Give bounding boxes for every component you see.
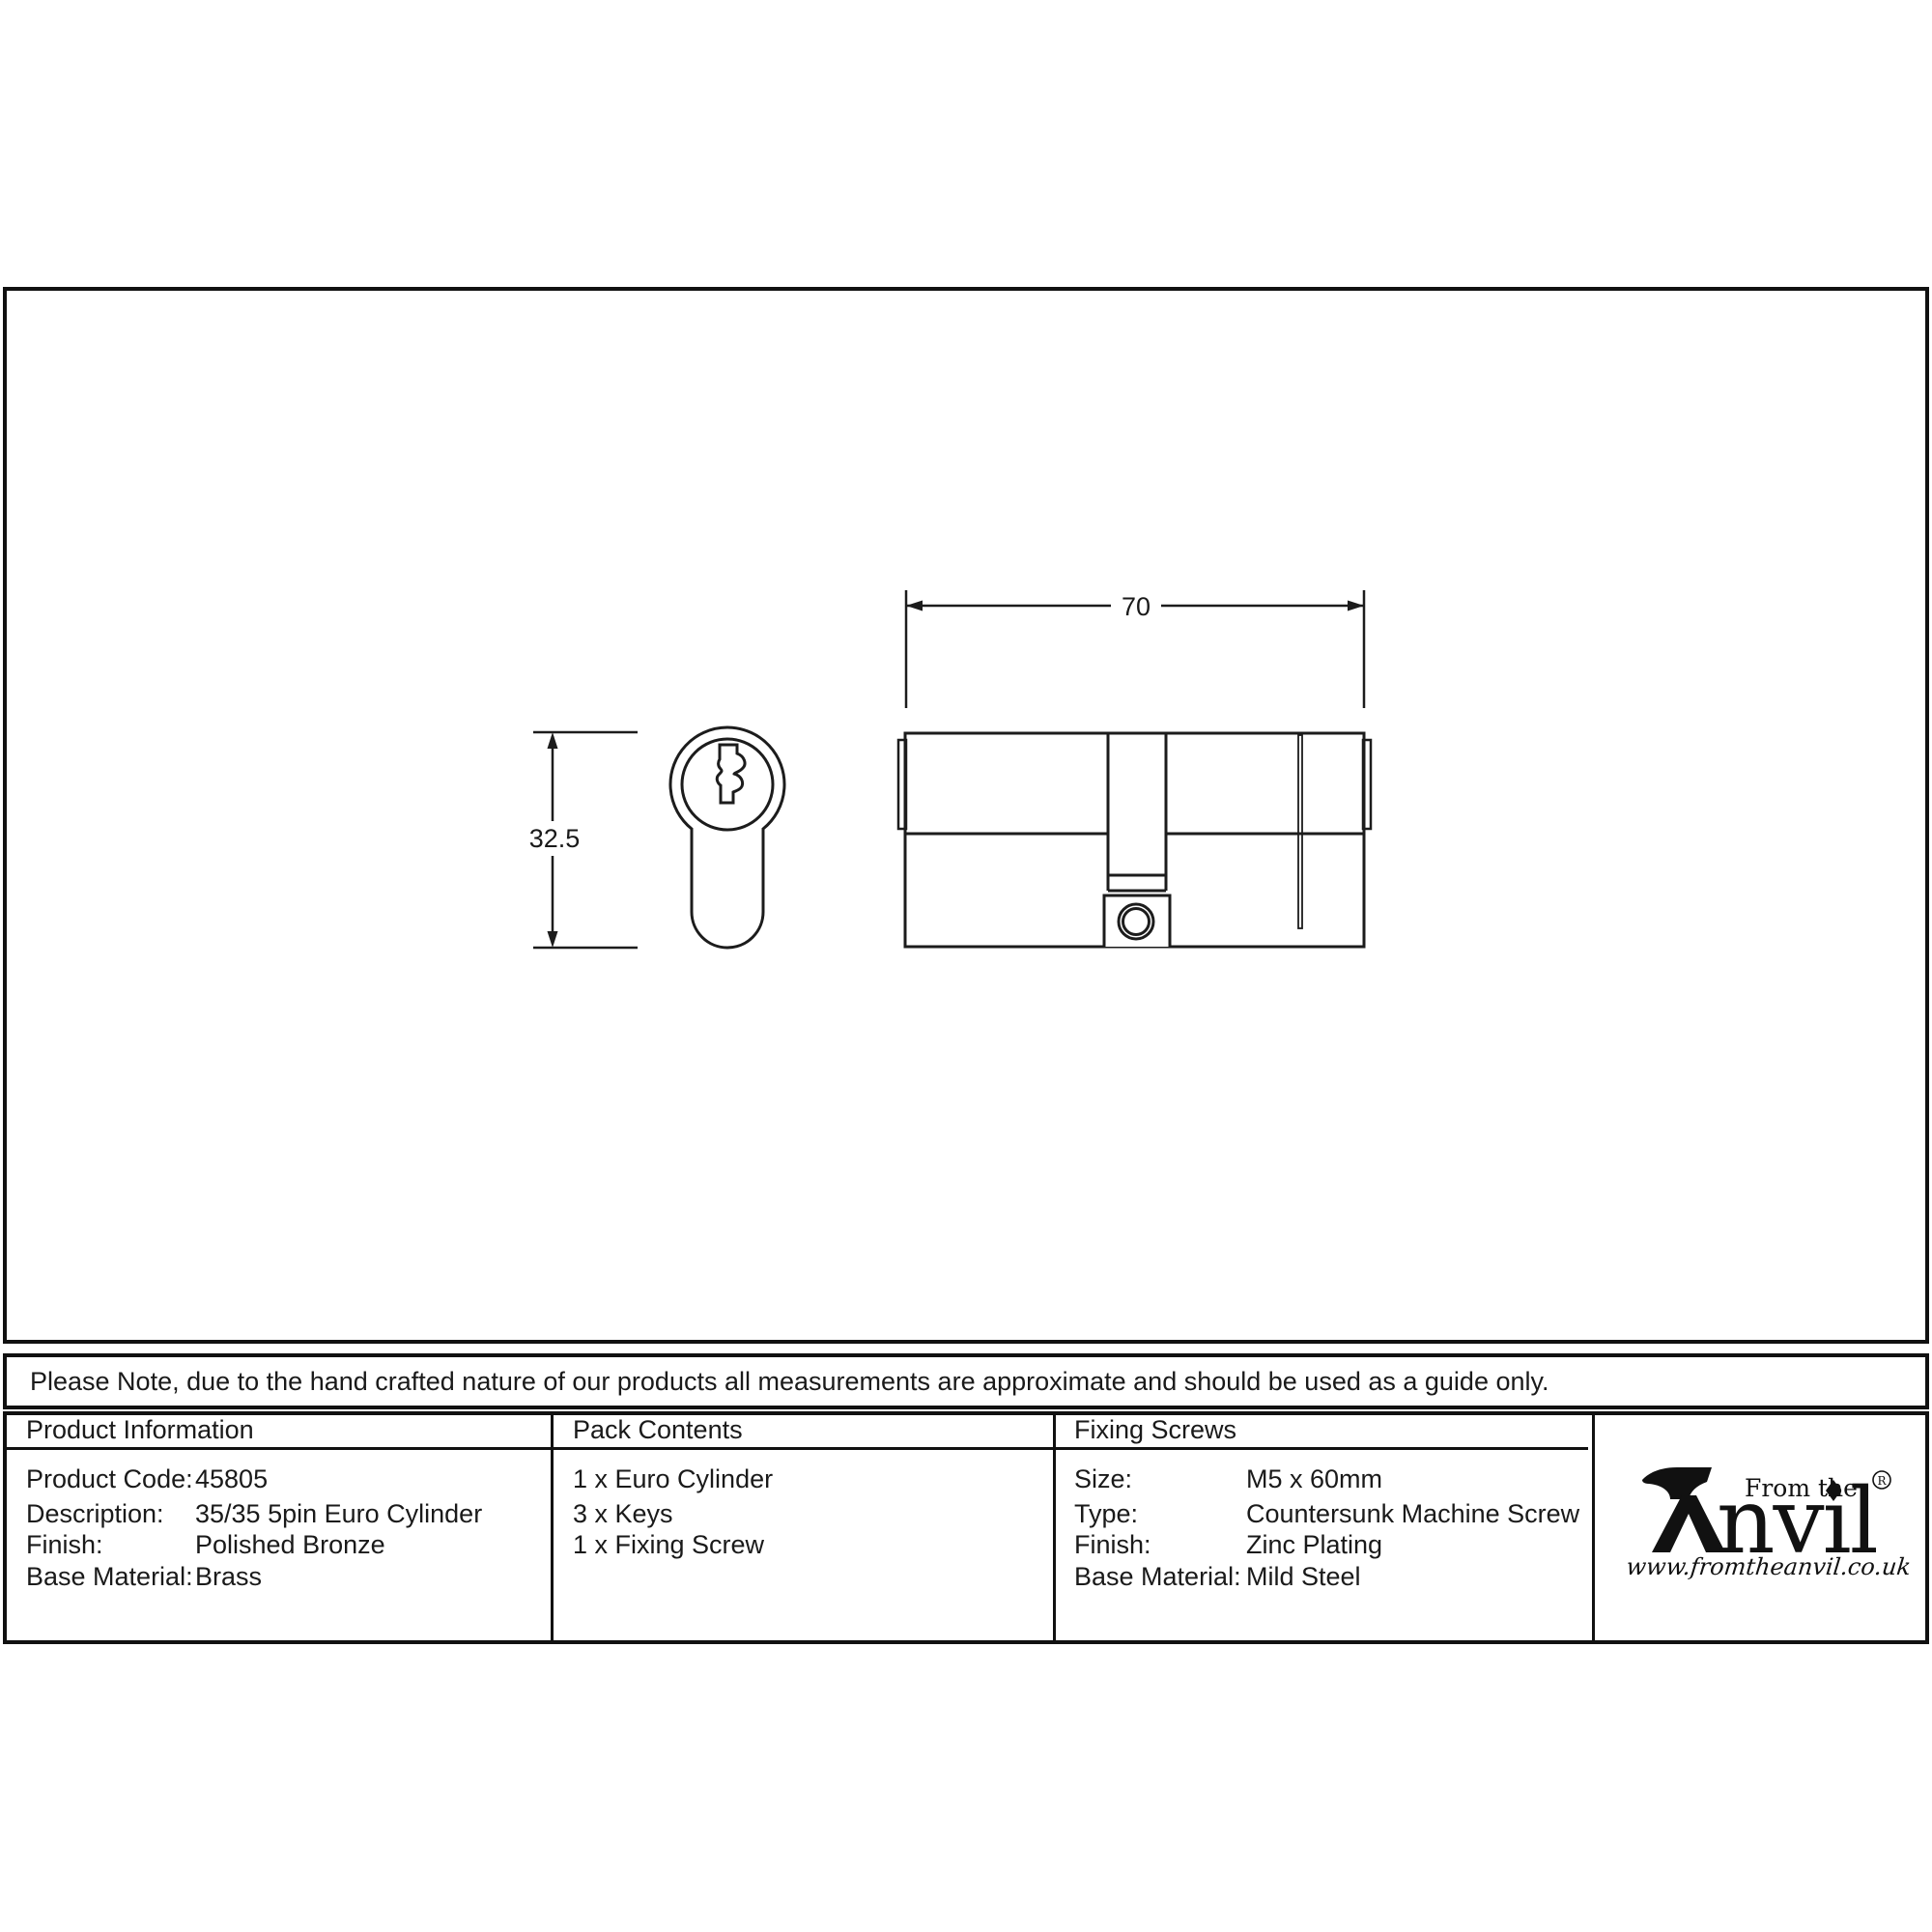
- screw-base-material-value: Mild Steel: [1246, 1562, 1361, 1591]
- table-header-divider: [7, 1447, 1588, 1450]
- screw-finish-value: Zinc Plating: [1246, 1530, 1382, 1559]
- table-row: Base Material: Brass: [26, 1562, 548, 1591]
- screw-type-label: Type:: [1074, 1499, 1138, 1528]
- table-row: Product Code: 45805: [26, 1464, 548, 1493]
- description-value: 35/35 5pin Euro Cylinder: [195, 1499, 482, 1528]
- base-material-value: Brass: [195, 1562, 262, 1591]
- product-code-value: 45805: [195, 1464, 268, 1493]
- note-text: Please Note, due to the hand crafted nat…: [30, 1357, 1549, 1406]
- pack-item: 1 x Euro Cylinder: [573, 1464, 773, 1493]
- pack-item: 1 x Fixing Screw: [573, 1530, 764, 1559]
- table-divider-3: [1592, 1415, 1595, 1640]
- header-product-information: Product Information: [26, 1415, 254, 1444]
- screw-finish-label: Finish:: [1074, 1530, 1151, 1559]
- table-row: Base Material: Mild Steel: [1074, 1562, 1586, 1591]
- product-code-label: Product Code:: [26, 1464, 193, 1493]
- screw-type-value: Countersunk Machine Screw: [1246, 1499, 1579, 1528]
- pack-item: 3 x Keys: [573, 1499, 673, 1528]
- screw-size-label: Size:: [1074, 1464, 1132, 1493]
- spec-table: Product Information Pack Contents Fixing…: [3, 1411, 1929, 1644]
- finish-value: Polished Bronze: [195, 1530, 385, 1559]
- table-row: Description: 35/35 5pin Euro Cylinder: [26, 1499, 548, 1528]
- table-row: Finish: Zinc Plating: [1074, 1530, 1586, 1559]
- drawing-frame: [3, 287, 1929, 1344]
- header-pack-contents: Pack Contents: [573, 1415, 743, 1444]
- table-row: Finish: Polished Bronze: [26, 1530, 548, 1559]
- table-row: Type: Countersunk Machine Screw: [1074, 1499, 1586, 1528]
- finish-label: Finish:: [26, 1530, 103, 1559]
- spec-sheet-page: { "drawing": { "width_dim": "70", "heigh…: [0, 0, 1932, 1932]
- screw-size-value: M5 x 60mm: [1246, 1464, 1382, 1493]
- header-fixing-screws: Fixing Screws: [1074, 1415, 1236, 1444]
- base-material-label: Base Material:: [26, 1562, 193, 1591]
- note-box: Please Note, due to the hand crafted nat…: [3, 1353, 1929, 1409]
- table-row: Size: M5 x 60mm: [1074, 1464, 1586, 1493]
- screw-base-material-label: Base Material:: [1074, 1562, 1241, 1591]
- description-label: Description:: [26, 1499, 164, 1528]
